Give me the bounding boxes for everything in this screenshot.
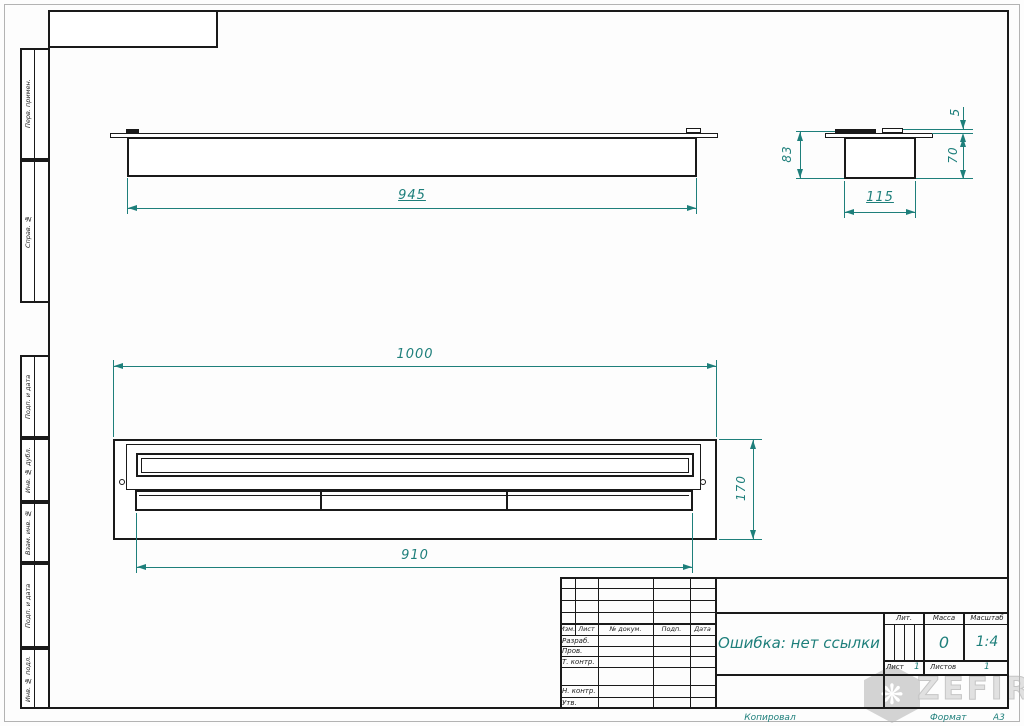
- dimension-arrow: [797, 132, 803, 141]
- row-utv: Утв.: [562, 697, 598, 708]
- row-tkontr: Т. контр.: [562, 656, 598, 667]
- extension-line: [113, 360, 114, 437]
- stamp-divider: [34, 50, 35, 158]
- side-body: [844, 137, 916, 179]
- stamp-divider: [34, 565, 35, 646]
- dimension-value-83: 83: [780, 139, 794, 169]
- dimension-arrow: [960, 170, 966, 179]
- format-label: Формат: [930, 711, 970, 724]
- front-left-tab: [126, 129, 139, 133]
- dimension-line: [136, 567, 693, 568]
- plan-burner-strip: [135, 490, 693, 511]
- dimension-line: [113, 366, 717, 367]
- margin-stamp-podp-data-1: Подп. и дата: [20, 355, 50, 438]
- sheets-value: 1: [984, 661, 992, 673]
- margin-stamp-label: Инв. № дубл.: [22, 440, 34, 500]
- dimension-value-1000: 1000: [360, 347, 470, 362]
- dimension-value-5: 5: [948, 101, 962, 123]
- rev-col-data: Дата: [690, 623, 715, 635]
- dimension-arrow: [750, 530, 756, 539]
- stamp-divider: [34, 650, 35, 707]
- margin-stamp-label: Инв. № подл.: [22, 650, 34, 707]
- dimension-arrow: [114, 363, 123, 369]
- titleblock-line: [560, 612, 715, 613]
- dimension-arrow: [128, 205, 137, 211]
- margin-stamp-inv-dubl: Инв. № дубл.: [20, 438, 50, 502]
- titleblock-line: [883, 612, 885, 709]
- lit-label: Лит.: [885, 612, 923, 624]
- titleblock-line: [690, 577, 691, 709]
- mass-value: 0: [925, 626, 963, 658]
- row-nkontr: Н. контр.: [562, 685, 598, 697]
- sheet-label: Лист: [886, 661, 912, 673]
- margin-stamp-perv-primen: Перв. примен.: [20, 48, 50, 160]
- extension-line: [796, 178, 844, 179]
- titleblock-line: [715, 674, 1009, 676]
- dimension-value-945: 945: [357, 188, 467, 203]
- margin-stamp-label: Подп. и дата: [22, 357, 34, 436]
- titleblock-line: [560, 667, 715, 668]
- titleblock-line: [598, 577, 599, 709]
- drawing-sheet: ❋ ZEFIRE Перв. примен. Справ. № Подп. и …: [0, 0, 1024, 726]
- rev-col-list: Лист: [575, 623, 598, 635]
- lit-subdivider: [914, 624, 915, 660]
- margin-stamp-label: Подп. и дата: [22, 565, 34, 646]
- margin-stamp-inv-podl: Инв. № подл.: [20, 648, 50, 709]
- dimension-arrow: [960, 138, 966, 147]
- margin-stamp-label: Справ. №: [22, 162, 34, 301]
- stamp-divider: [34, 162, 35, 301]
- side-right-tab: [882, 128, 903, 133]
- row-razrab: Разраб.: [562, 635, 598, 646]
- mounting-hole: [700, 479, 706, 485]
- rotated-designation-box: [48, 10, 218, 48]
- stamp-divider: [34, 440, 35, 500]
- dimension-arrow: [845, 209, 854, 215]
- dimension-value-170: 170: [734, 469, 748, 507]
- rev-col-podp: Подп.: [653, 623, 690, 635]
- dimension-arrow: [137, 564, 146, 570]
- drawing-frame: [48, 10, 1009, 709]
- rev-col-izm: Изм.: [560, 623, 575, 635]
- strip-divider: [320, 492, 322, 509]
- stamp-divider: [34, 357, 35, 436]
- extension-line: [716, 360, 717, 437]
- dimension-arrow: [707, 363, 716, 369]
- dimension-value-115: 115: [845, 190, 915, 205]
- mounting-hole: [119, 479, 125, 485]
- format-value: А3: [993, 711, 1013, 724]
- document-name: Ошибка: нет ссылки: [717, 614, 881, 672]
- mass-label: Масса: [925, 612, 963, 624]
- strip-inner-line: [139, 495, 689, 496]
- dimension-line: [753, 439, 754, 540]
- sheet-value: 1: [914, 661, 922, 673]
- titleblock-line: [653, 577, 654, 709]
- lit-subdivider: [894, 624, 895, 660]
- margin-stamp-label: Взам. инв. №: [22, 504, 34, 561]
- front-body: [127, 137, 697, 177]
- margin-stamp-sprav-no: Справ. №: [20, 160, 50, 303]
- dimension-arrow: [687, 205, 696, 211]
- dimension-value-910: 910: [360, 548, 470, 563]
- titleblock-line: [883, 624, 1009, 625]
- dimension-arrow: [683, 564, 692, 570]
- margin-stamp-vzam-inv: Взам. инв. №: [20, 502, 50, 563]
- front-right-tab: [686, 128, 701, 133]
- extension-line: [903, 129, 973, 130]
- side-left-tab: [835, 129, 876, 133]
- extension-line: [719, 539, 762, 540]
- titleblock-line: [560, 600, 715, 601]
- kopiroval-label: Копировал: [700, 711, 840, 724]
- dimension-line: [127, 208, 697, 209]
- scale-label: Масштаб: [965, 612, 1009, 624]
- plan-slot-inner: [141, 458, 689, 473]
- extension-line: [932, 133, 973, 134]
- strip-divider: [506, 492, 508, 509]
- margin-stamp-podp-data-2: Подп. и дата: [20, 563, 50, 648]
- dimension-arrow: [750, 440, 756, 449]
- row-prov: Пров.: [562, 646, 598, 656]
- scale-value: 1:4: [965, 626, 1009, 658]
- rev-col-doc: № докум.: [598, 623, 653, 635]
- margin-stamp-label: Перв. примен.: [22, 50, 34, 158]
- lit-subdivider: [904, 624, 905, 660]
- dimension-arrow: [797, 169, 803, 178]
- dimension-value-70: 70: [946, 140, 960, 170]
- dimension-arrow: [906, 209, 915, 215]
- titleblock-line: [560, 588, 715, 589]
- extension-line: [692, 513, 693, 573]
- titleblock-line: [560, 577, 1009, 579]
- stamp-divider: [34, 504, 35, 561]
- sheets-label: Листов: [930, 661, 962, 673]
